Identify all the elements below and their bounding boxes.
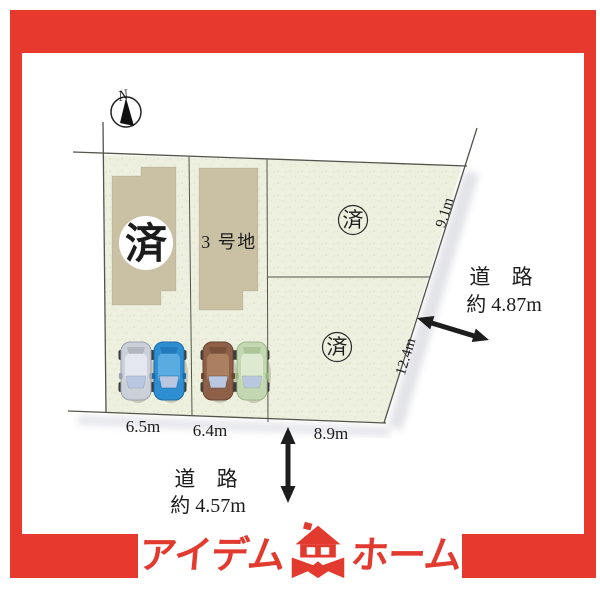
road-bottom-arrow — [281, 427, 296, 503]
sold-badge-right-top-label: 済 — [343, 208, 364, 232]
house-icon — [288, 521, 348, 579]
measure-middle-frontage: 6.4m — [193, 421, 227, 440]
road-bottom-title: 道 路 — [174, 467, 245, 491]
car-silver — [119, 342, 156, 403]
road-bottom-width: 約 4.57m — [170, 494, 246, 517]
sold-badge-right-bottom-label: 済 — [327, 335, 348, 359]
car-brown — [201, 342, 238, 403]
plot-diagram: 済 3 号地 済 済 — [0, 0, 600, 600]
car-blue — [152, 342, 189, 403]
road-right-title: 道 路 — [469, 265, 540, 289]
parcel-middle-label: 3 号地 — [201, 232, 257, 252]
company-logo: アイデム ホーム — [133, 522, 467, 588]
sold-badge-left-label: 済 — [125, 221, 168, 268]
road-right-width: 約 4.87m — [466, 293, 542, 316]
compass: N — [111, 87, 141, 127]
measure-right-frontage: 8.9m — [314, 424, 348, 443]
logo-text-left: アイデム — [138, 536, 287, 574]
car-green — [235, 342, 272, 403]
measure-left-frontage: 6.5m — [126, 417, 160, 436]
logo-text-right: ホーム — [349, 536, 462, 574]
